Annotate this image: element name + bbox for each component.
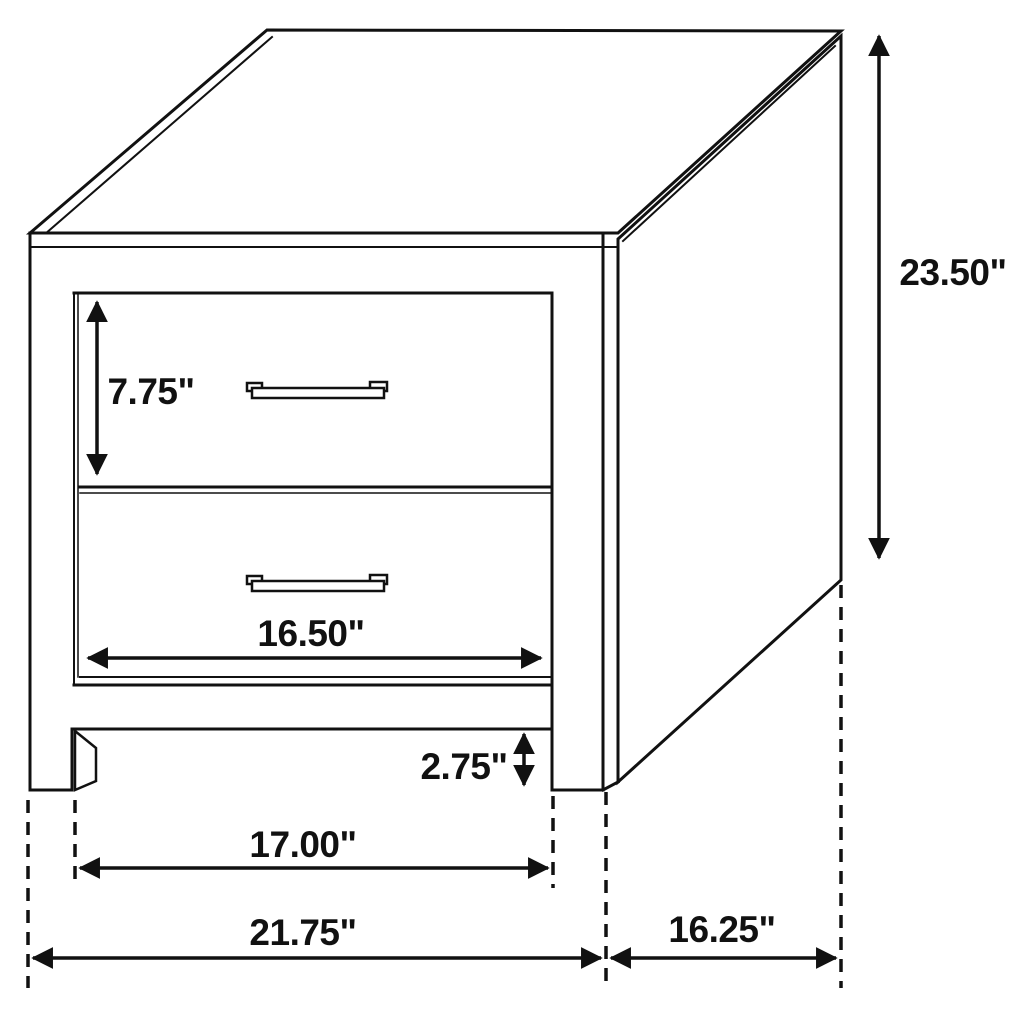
dim-between-legs-width: 17.00": [80, 824, 548, 868]
dim-leg-clearance: 2.75": [420, 734, 524, 787]
dim-overall-width: 21.75": [33, 912, 601, 958]
dim-label-depth: 16.25": [668, 909, 775, 950]
dim-label-drawer-width: 16.50": [257, 613, 364, 654]
dim-overall-height: 23.50": [879, 36, 1007, 558]
nightstand-dimension-diagram: 23.50" 7.75" 16.50" 2.75" 17.00" 21.75": [0, 0, 1024, 1024]
right-leg-bottom-edge: [603, 782, 618, 790]
dim-label-leg-clearance: 2.75": [420, 746, 507, 787]
dim-label-between-legs-width: 17.00": [249, 824, 356, 865]
dim-depth: 16.25": [611, 909, 836, 958]
dim-label-overall-width: 21.75": [249, 912, 356, 953]
front-face-and-legs-outline: [30, 233, 603, 790]
dim-label-top-drawer-height: 7.75": [107, 371, 194, 412]
diagram-canvas: 23.50" 7.75" 16.50" 2.75" 17.00" 21.75": [0, 0, 1024, 1024]
rear-left-leg: [75, 731, 96, 790]
dim-label-overall-height: 23.50": [899, 252, 1006, 293]
